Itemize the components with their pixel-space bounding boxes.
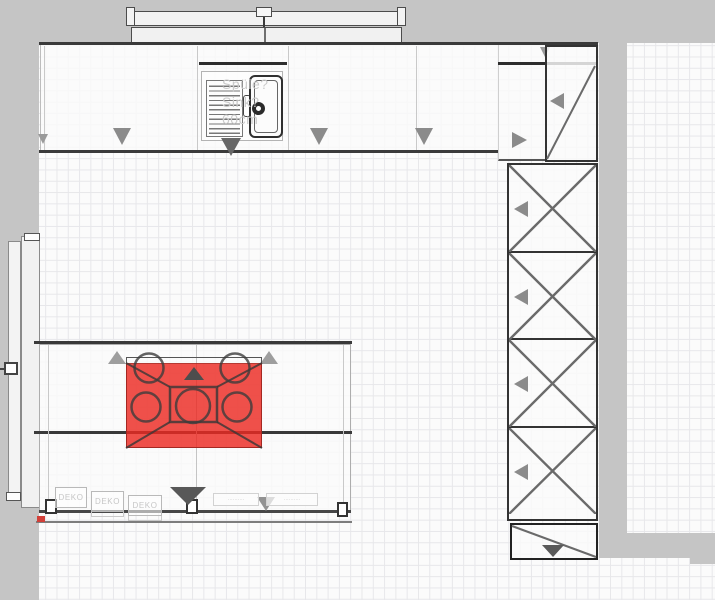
door-side-arrow-icon xyxy=(512,132,527,148)
left-wall-unit-cap-top xyxy=(24,233,40,241)
door-swing-arrow-icon xyxy=(113,128,131,145)
floor-plan-canvas: Spüle? Sink? 60cm xyxy=(0,0,715,600)
door-swing-arrow-icon xyxy=(38,134,48,144)
island-foot xyxy=(337,502,348,517)
left-wall-unit-handle xyxy=(4,362,18,375)
door-side-arrow-icon xyxy=(514,464,528,480)
cooktop-burners-icon xyxy=(100,345,300,460)
open-direction-arrow-icon xyxy=(184,367,204,380)
deko-box-understrip xyxy=(91,512,124,517)
sink-label-line2: Sink? xyxy=(222,94,269,112)
left-wall-unit-cap-bottom xyxy=(6,492,21,501)
deko-box-understrip xyxy=(128,516,162,521)
shelf-center-bracket xyxy=(256,7,272,17)
drawer-label: ·········· xyxy=(284,497,301,503)
door-side-arrow-icon xyxy=(550,93,564,109)
drawer-box: ·········· xyxy=(266,493,318,506)
sink-label-line1: Spüle? xyxy=(222,76,269,94)
shelf-end-cap-left xyxy=(126,7,135,26)
tall-cabinet[interactable] xyxy=(509,253,596,341)
wall-bottom-right xyxy=(627,533,715,558)
door-side-arrow-icon xyxy=(514,376,528,392)
door-swing-arrow-icon xyxy=(221,138,241,156)
island-top-edge xyxy=(34,341,352,344)
island-end-panel-left xyxy=(48,345,49,510)
tall-cabinet-column xyxy=(507,163,598,521)
deko-box[interactable]: DEKO xyxy=(91,491,124,512)
sink-label-line3: 60cm xyxy=(222,111,269,129)
door-swing-arrow-icon xyxy=(310,128,328,145)
drawer-box: ·········· xyxy=(213,493,259,506)
island-counter-overhang-edge xyxy=(36,521,352,523)
door-swing-arrow-icon xyxy=(542,545,564,557)
counter-front-edge xyxy=(39,150,499,153)
door-swing-arrow-icon xyxy=(415,128,433,145)
deko-label: DEKO xyxy=(58,493,83,502)
wall-right xyxy=(599,43,627,558)
tall-cabinet[interactable] xyxy=(509,165,596,253)
deko-box[interactable]: DEKO xyxy=(55,487,87,508)
shelf-end-cap-right xyxy=(397,7,406,26)
wall-bottom-right-step xyxy=(690,558,715,564)
sink-label: Spüle? Sink? 60cm xyxy=(222,76,269,129)
door-side-arrow-icon xyxy=(514,289,528,305)
wall-shelf-lower[interactable] xyxy=(131,27,402,43)
deko-label: DEKO xyxy=(132,501,157,510)
drawer-label: ·········· xyxy=(228,497,245,503)
island-end-panel-right xyxy=(343,345,344,510)
tall-cabinet[interactable] xyxy=(509,428,596,514)
shelf-lower-divider xyxy=(264,28,266,43)
counter-divider-2 xyxy=(288,46,289,150)
tall-cabinet[interactable] xyxy=(509,340,596,428)
island-red-mark xyxy=(37,516,45,522)
door-side-arrow-icon xyxy=(514,201,528,217)
door-swing-arrow-icon xyxy=(170,487,206,505)
deko-box[interactable]: DEKO xyxy=(128,495,162,516)
deko-label: DEKO xyxy=(95,497,120,506)
sink-cabinet-top-edge xyxy=(199,62,287,65)
left-wall-unit-tick xyxy=(0,368,5,370)
counter-divider-1 xyxy=(197,46,198,150)
left-wall-unit[interactable] xyxy=(21,236,40,508)
